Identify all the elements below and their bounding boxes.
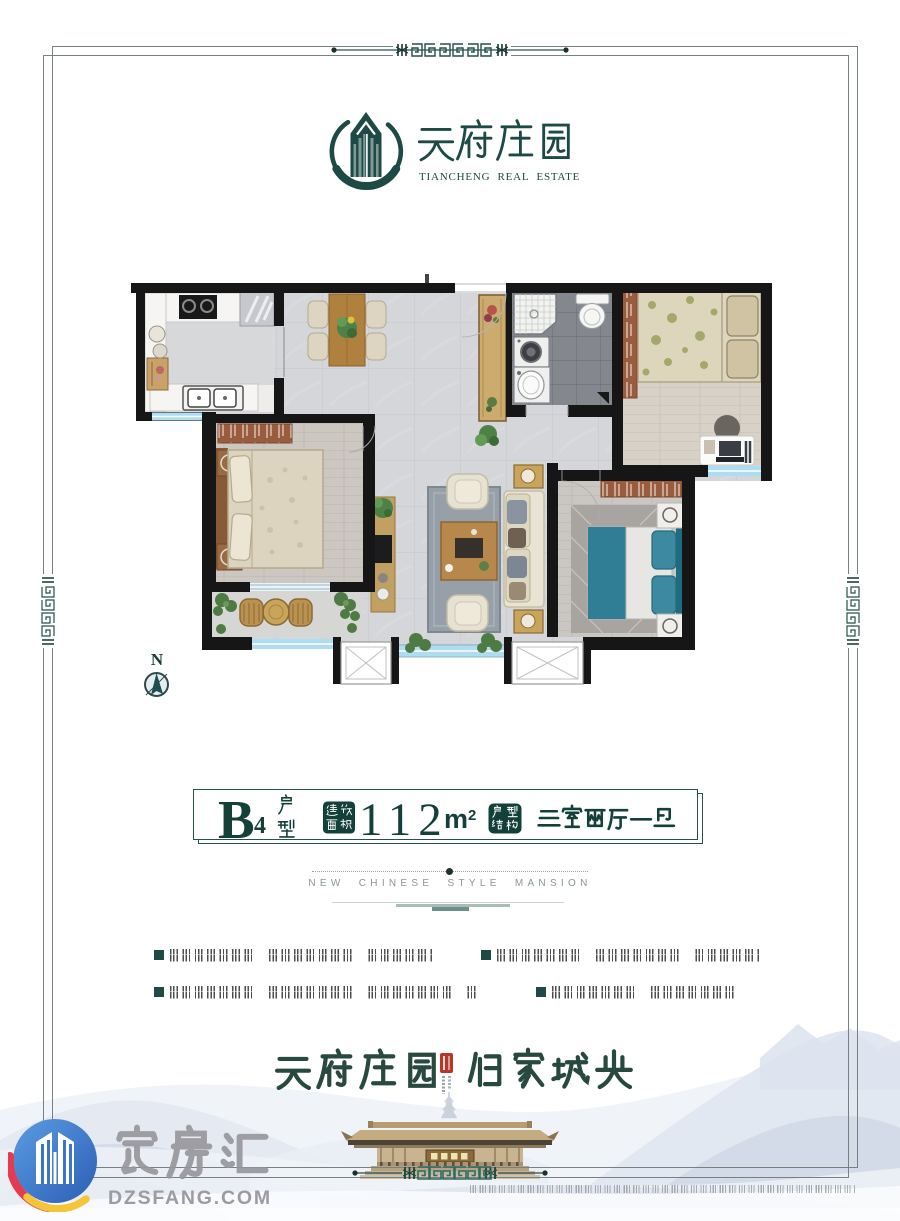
svg-text:DZSFANG.COM: DZSFANG.COM <box>108 1187 272 1209</box>
